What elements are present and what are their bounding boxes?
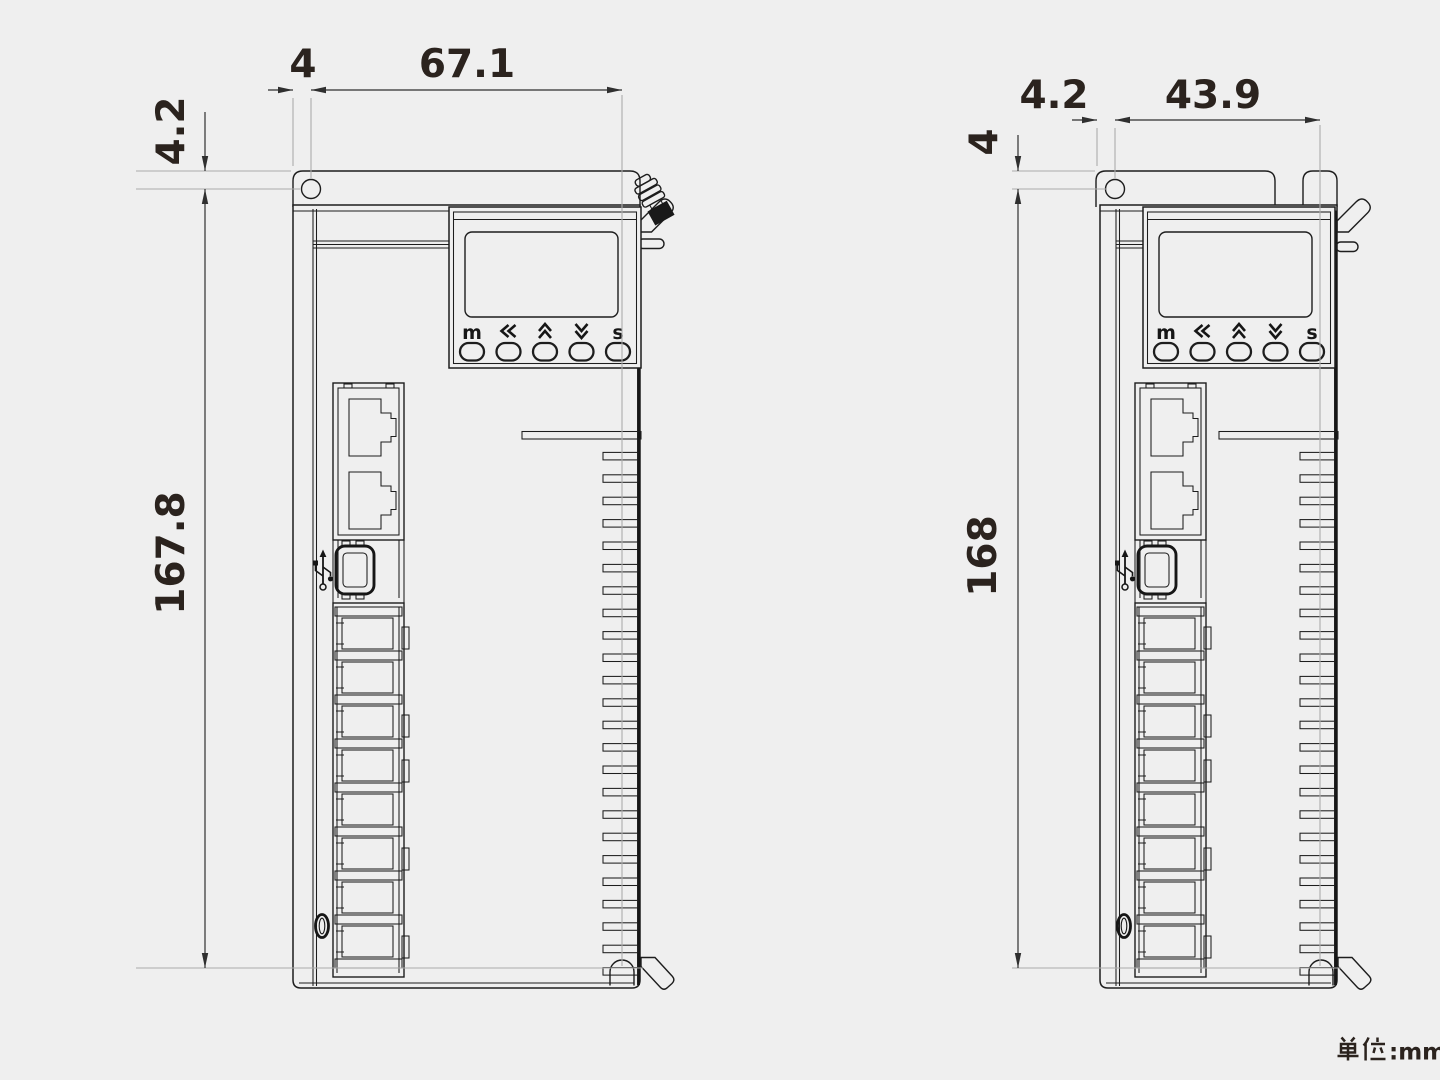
display-panel: [1143, 207, 1335, 368]
bottom-latch-bracket: [1338, 958, 1371, 990]
dim-top-to-hole: 4: [962, 128, 1007, 155]
mounting-flange: [293, 171, 640, 207]
mounting-hole: [1106, 180, 1125, 199]
dim-height: 168: [961, 515, 1006, 596]
dim-width: 67.1: [419, 42, 515, 87]
display-panel: [449, 207, 641, 368]
technical-drawing-page: m s: [0, 0, 1440, 1080]
dim-top-to-hole: 4.2: [149, 96, 194, 165]
dim-edge-to-hole: 4.2: [1019, 73, 1088, 118]
unit-cjk-glyphs: [1338, 1038, 1386, 1061]
din-latch-bracket: [1337, 199, 1370, 232]
dim-edge-to-hole: 4: [289, 42, 316, 87]
right-device-view: [1096, 171, 1371, 989]
unit-label: :mm: [1338, 1038, 1440, 1066]
unit-suffix-text: :mm: [1389, 1040, 1440, 1066]
servo-drive-dimension-drawing: m s: [0, 0, 1440, 1080]
dim-height: 167.8: [149, 491, 194, 614]
latch-pin: [638, 239, 664, 249]
mounting-hole: [302, 180, 321, 199]
dim-width: 43.9: [1165, 73, 1261, 118]
mounting-flange: [1096, 171, 1275, 207]
left-device-view: [293, 171, 675, 989]
latch-pin: [1336, 242, 1358, 252]
bottom-latch-bracket: [641, 958, 674, 990]
